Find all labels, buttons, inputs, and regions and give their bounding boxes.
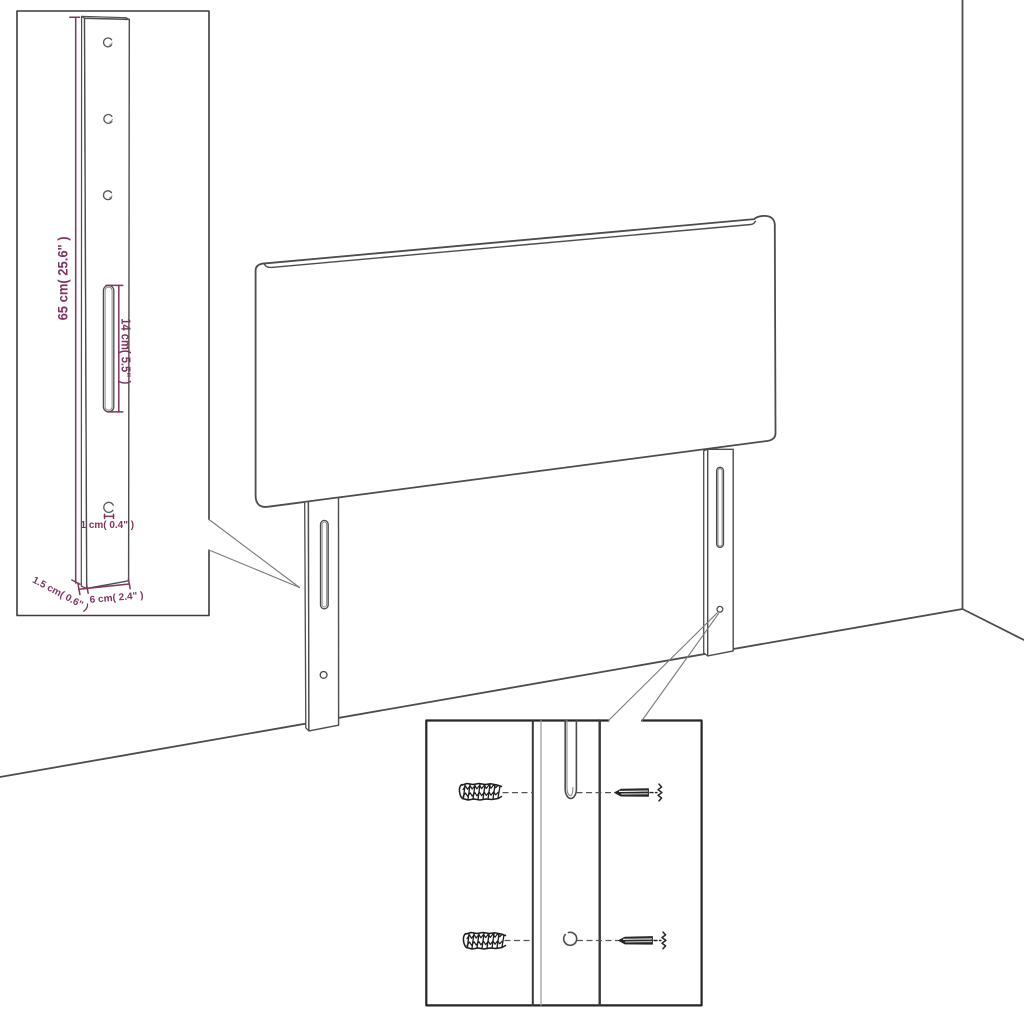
svg-text:14 cm( 5.5" ): 14 cm( 5.5" ): [118, 318, 132, 384]
svg-text:65 cm( 25.6" ): 65 cm( 25.6" ): [54, 236, 70, 320]
svg-text:1 cm( 0.4" ): 1 cm( 0.4" ): [81, 520, 135, 531]
